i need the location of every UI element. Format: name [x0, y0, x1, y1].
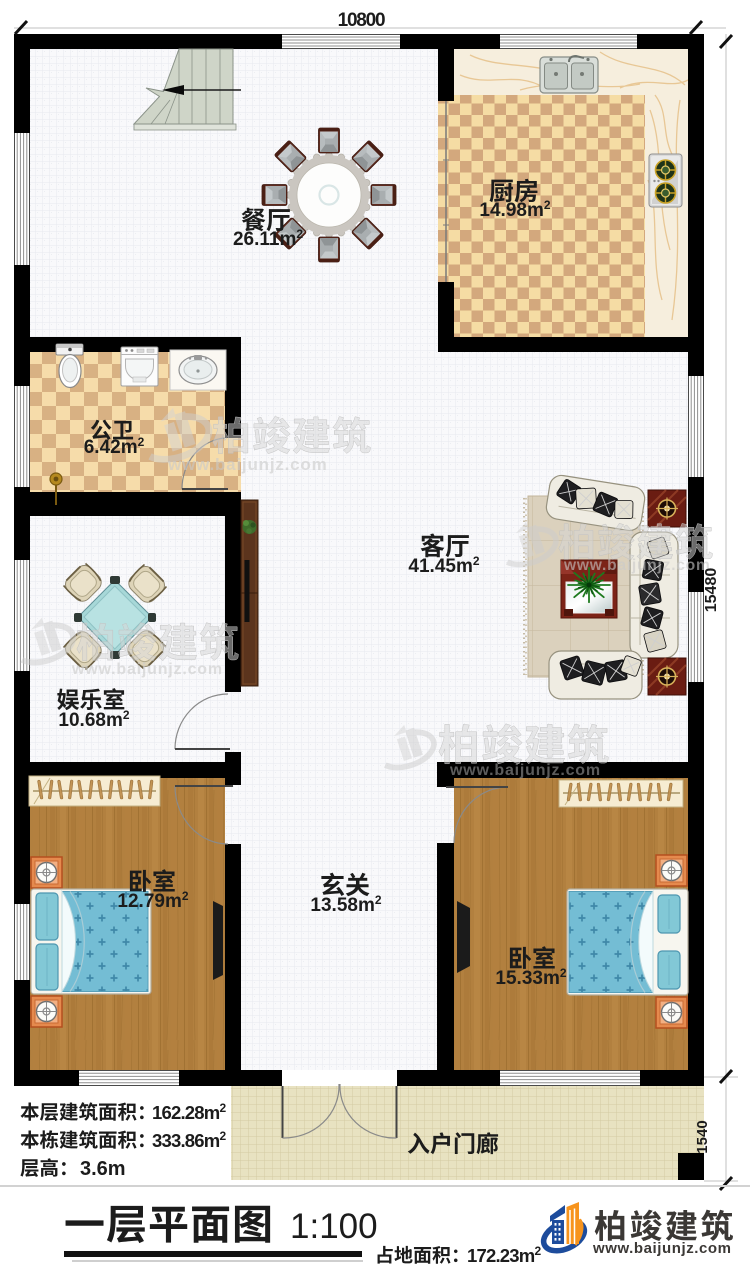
- svg-text:12.79m2: 12.79m2: [117, 889, 188, 912]
- svg-text:10.68m2: 10.68m2: [58, 708, 129, 731]
- svg-text:14.98m2: 14.98m2: [479, 198, 550, 221]
- svg-text:172.23m2: 172.23m2: [467, 1244, 541, 1266]
- svg-text:1540: 1540: [694, 1120, 711, 1153]
- svg-text:www.baijunjz.com: www.baijunjz.com: [449, 762, 601, 779]
- svg-text:13.58m2: 13.58m2: [310, 893, 381, 916]
- svg-text:www.baijunjz.com: www.baijunjz.com: [592, 1240, 732, 1257]
- svg-text:10800: 10800: [338, 10, 385, 31]
- svg-text:6.42m2: 6.42m2: [84, 435, 145, 458]
- svg-text:www.baijunjz.com: www.baijunjz.com: [167, 455, 328, 474]
- svg-text:www.baijunjz.com: www.baijunjz.com: [563, 557, 711, 574]
- svg-text:41.45m2: 41.45m2: [408, 554, 479, 577]
- svg-text:333.86m2: 333.86m2: [152, 1129, 226, 1151]
- svg-text:www.baijunjz.com: www.baijunjz.com: [71, 661, 223, 678]
- svg-text:15.33m2: 15.33m2: [495, 966, 566, 989]
- svg-text:162.28m2: 162.28m2: [152, 1101, 226, 1123]
- svg-text:1:100: 1:100: [290, 1207, 378, 1246]
- svg-text:15480: 15480: [703, 568, 720, 613]
- svg-text:3.6m: 3.6m: [80, 1158, 126, 1180]
- svg-text:26.11m2: 26.11m2: [233, 227, 303, 250]
